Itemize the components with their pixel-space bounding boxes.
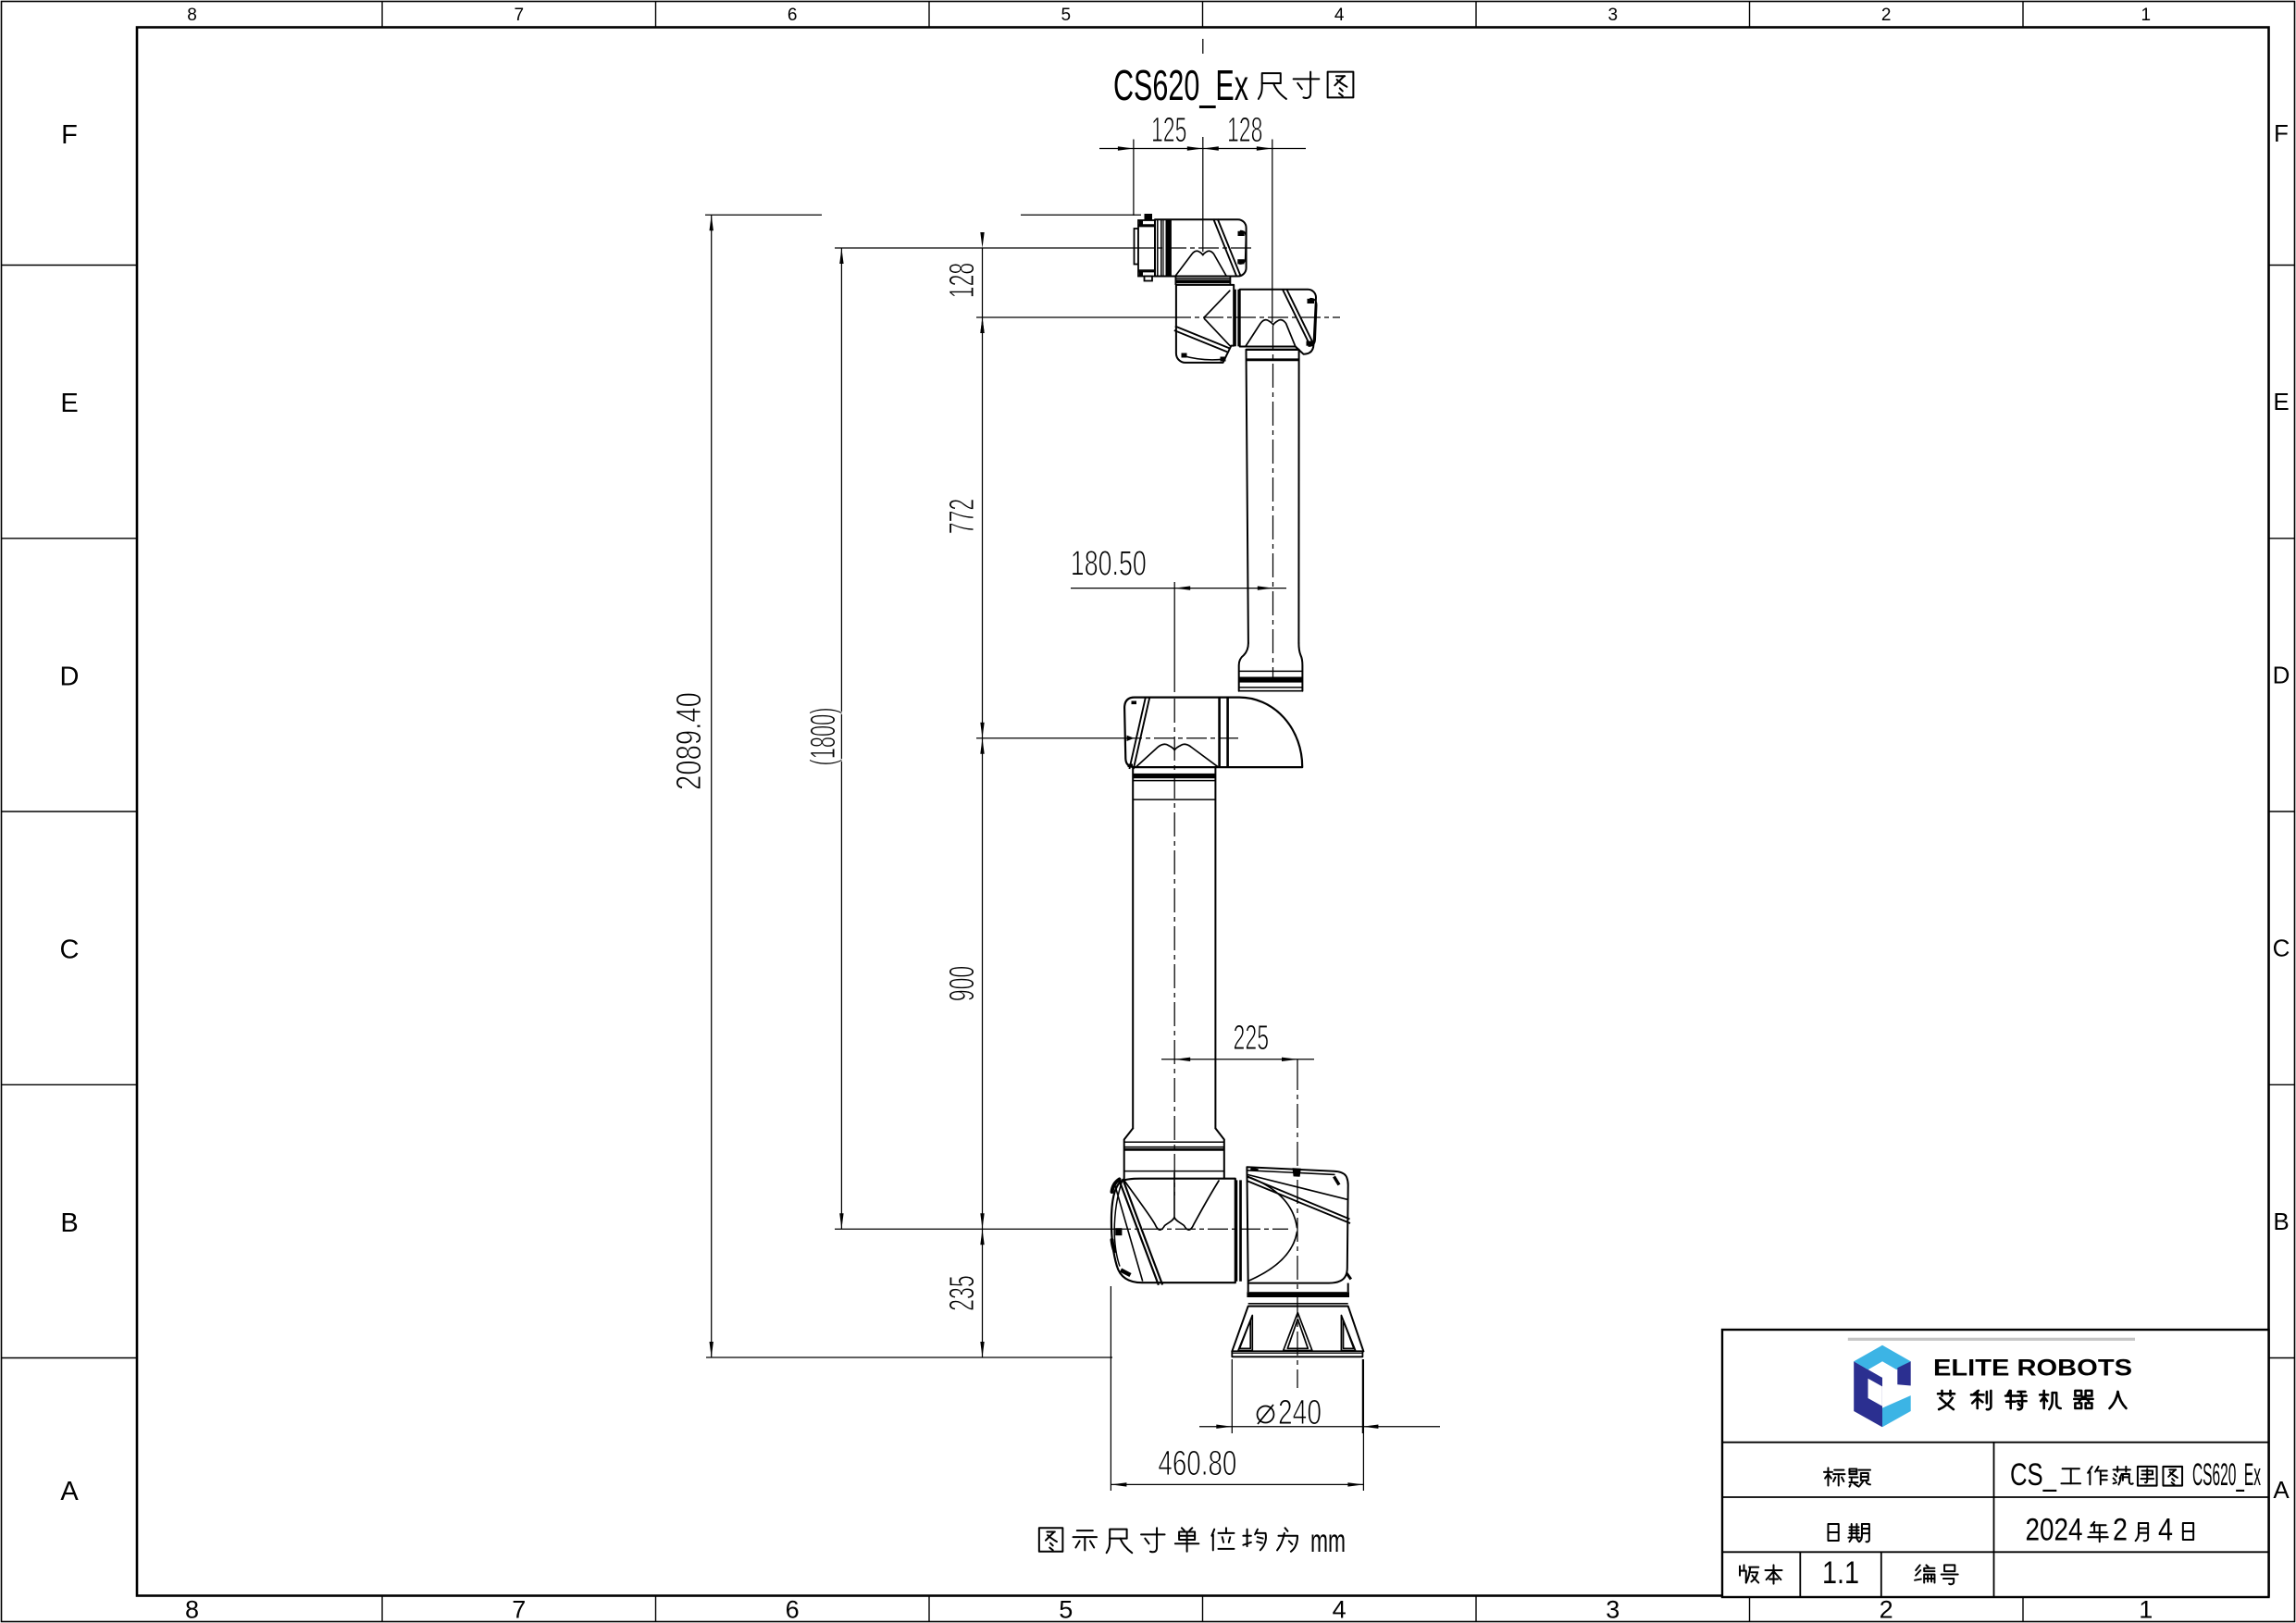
svg-text:(1800): (1800) (804, 708, 843, 766)
svg-text:A: A (2273, 1476, 2290, 1504)
svg-text:2089.40: 2089.40 (670, 692, 709, 790)
svg-text:E: E (2273, 388, 2289, 415)
svg-text:E: E (60, 389, 78, 418)
svg-text:4: 4 (2158, 1513, 2173, 1548)
svg-text:240: 240 (1278, 1394, 1322, 1432)
svg-text:225: 225 (1234, 1019, 1270, 1058)
svg-text:7: 7 (515, 6, 525, 25)
svg-text:4: 4 (1333, 1596, 1347, 1623)
svg-text:mm: mm (1310, 1523, 1346, 1559)
svg-text:CS_: CS_ (2010, 1457, 2057, 1493)
svg-text:C: C (2273, 935, 2290, 962)
svg-text:6: 6 (788, 6, 798, 25)
svg-text:5: 5 (1059, 1596, 1073, 1623)
svg-text:900: 900 (943, 966, 982, 1002)
svg-text:ELITE ROBOTS: ELITE ROBOTS (1933, 1356, 2132, 1381)
svg-text:1.1: 1.1 (1822, 1555, 1859, 1591)
svg-text:460.80: 460.80 (1158, 1444, 1236, 1483)
svg-text:CS620_Ex: CS620_Ex (1113, 61, 1248, 109)
svg-text:8: 8 (185, 1596, 199, 1623)
svg-text:F: F (2274, 119, 2289, 147)
svg-text:5: 5 (1061, 6, 1072, 25)
svg-text:7: 7 (512, 1596, 526, 1623)
svg-text:1: 1 (2139, 1596, 2153, 1623)
svg-text:D: D (60, 662, 80, 691)
svg-text:F: F (61, 120, 78, 150)
svg-text:8: 8 (187, 6, 197, 25)
svg-text:3: 3 (1606, 1596, 1620, 1623)
svg-text:6: 6 (786, 1596, 800, 1623)
svg-text:C: C (60, 935, 80, 965)
svg-text:2: 2 (1881, 6, 1892, 25)
svg-text:772: 772 (943, 499, 982, 535)
svg-text:1: 1 (2141, 6, 2152, 25)
svg-text:B: B (2273, 1208, 2289, 1235)
svg-text:180.50: 180.50 (1071, 545, 1147, 584)
svg-text:125: 125 (1151, 111, 1187, 150)
svg-text:128: 128 (943, 263, 982, 299)
svg-text:4: 4 (1334, 6, 1345, 25)
svg-text:D: D (2273, 661, 2290, 688)
svg-text:235: 235 (943, 1275, 982, 1311)
svg-text:2024: 2024 (2026, 1513, 2083, 1548)
svg-text:A: A (60, 1477, 79, 1506)
svg-text:B: B (60, 1208, 78, 1238)
svg-text:2: 2 (2113, 1513, 2128, 1548)
svg-text:128: 128 (1227, 111, 1263, 150)
svg-text:3: 3 (1608, 6, 1619, 25)
svg-text:2: 2 (1880, 1596, 1893, 1623)
svg-text:CS620_Ex: CS620_Ex (2192, 1457, 2261, 1493)
